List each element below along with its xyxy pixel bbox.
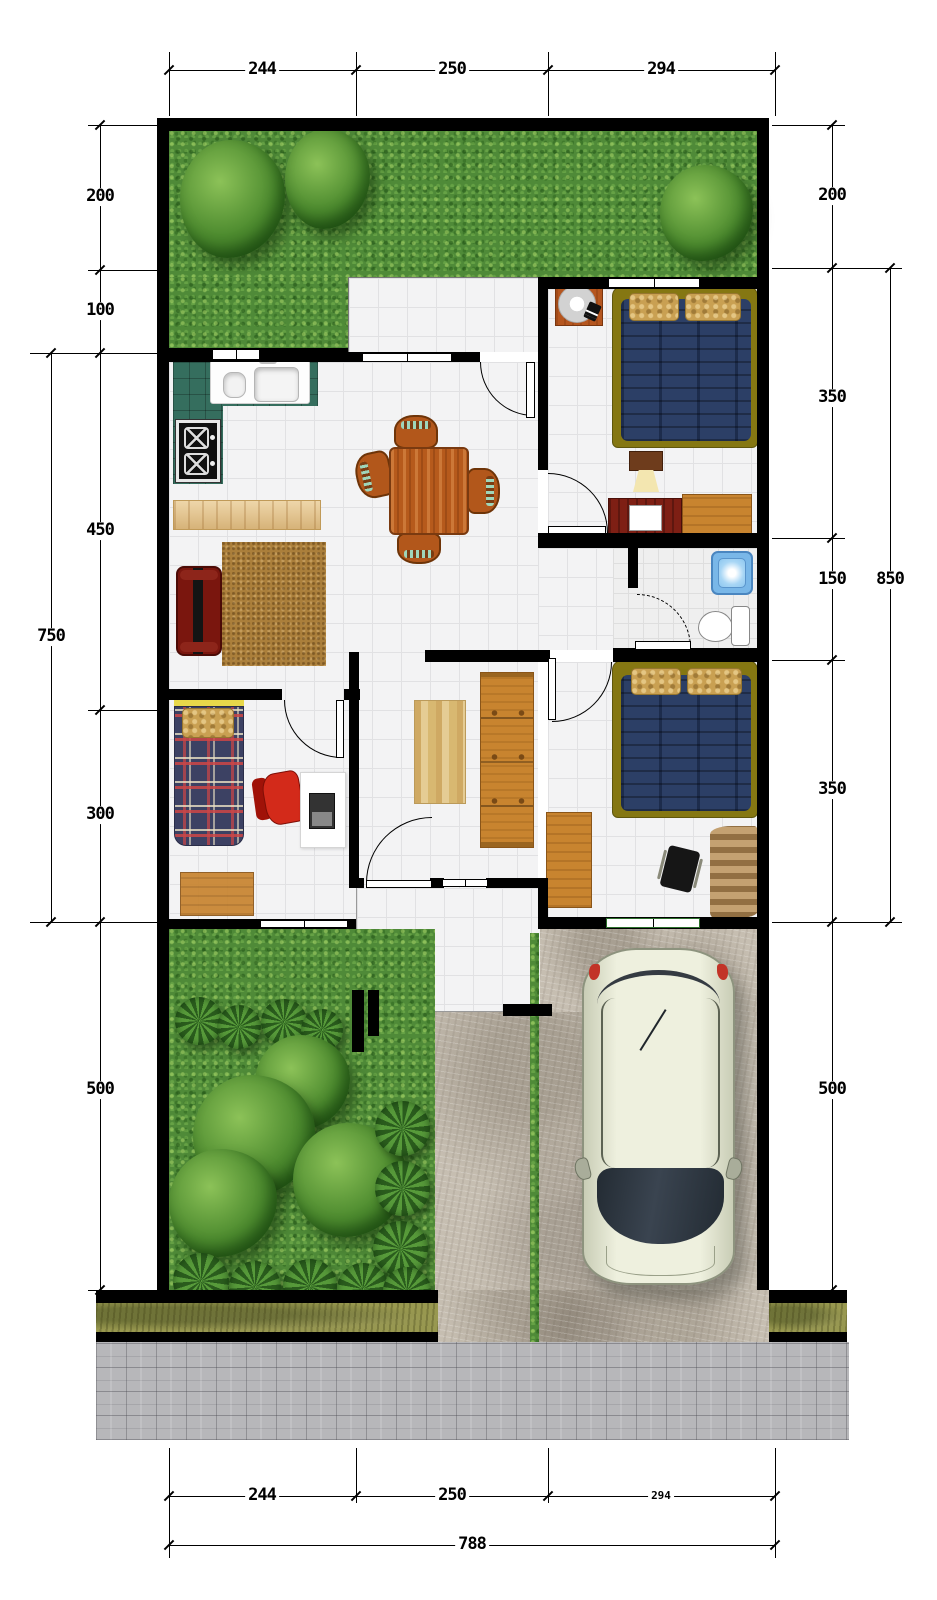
dim-label: 300 [83, 806, 117, 824]
dim-ext-line [772, 268, 902, 269]
car-hood-line [606, 1246, 715, 1276]
dining-table [389, 447, 469, 535]
dining-chair [397, 532, 441, 564]
dim-ext-line [772, 125, 845, 126]
dim-line-right [832, 125, 833, 1290]
dim-label: 500 [815, 1081, 849, 1099]
car [582, 948, 735, 1285]
dim-label: 350 [815, 389, 849, 407]
bed-pillow [629, 293, 679, 321]
dim-ext-line [772, 1290, 845, 1291]
bedroom2-door [548, 658, 556, 720]
bedroom1-left-wall [538, 277, 548, 470]
car-taillight [717, 964, 728, 980]
bed-mattress [621, 675, 751, 811]
tree [285, 129, 370, 229]
front-fence [96, 1290, 438, 1303]
dim-label: 350 [815, 781, 849, 799]
sofa [176, 566, 222, 656]
nightstand [629, 451, 663, 471]
dim-label: 244 [245, 1487, 279, 1505]
dim-ext-line [772, 538, 845, 539]
hall-window [442, 879, 488, 887]
terrace-side-wall [538, 888, 548, 929]
dining-chair [394, 415, 438, 449]
tree [660, 165, 753, 261]
hall-vertical-wall [349, 652, 359, 888]
boundary-wall-top [157, 118, 769, 131]
kitchen-window [212, 349, 260, 360]
car-body [582, 948, 735, 1285]
sideboard [173, 500, 321, 530]
front-fence [769, 1290, 847, 1303]
chair-cushion [404, 550, 434, 558]
car-taillight [589, 964, 600, 980]
dim-ext-line [772, 660, 845, 661]
toilet [698, 606, 750, 646]
living-window [362, 353, 452, 362]
burner [184, 453, 209, 475]
porch [348, 277, 538, 352]
stove-knob [210, 461, 215, 466]
dim-label: 294 [648, 1490, 674, 1502]
bedroom3-top-wall [344, 689, 360, 700]
shower-drain-area [718, 558, 746, 588]
tree [180, 140, 285, 258]
living-rug [222, 542, 326, 666]
rug [710, 826, 758, 918]
bedroom1-door [548, 526, 606, 534]
shrub [375, 1101, 430, 1156]
dim-label: 788 [455, 1536, 489, 1554]
back-garden [169, 929, 435, 1290]
wardrobe-cap [481, 842, 533, 847]
kitchen-sink [210, 360, 310, 404]
hall-bottom-wall [356, 878, 364, 888]
double-bed [612, 286, 758, 448]
driveway-crossing [438, 1290, 769, 1342]
dim-ext-line [169, 52, 170, 116]
burner [184, 427, 209, 449]
bathroom-left-wall [628, 548, 638, 588]
desk-chair-red [254, 770, 302, 828]
bedroom1-bottom-wall [538, 533, 769, 548]
driveway-grass-strip [530, 933, 539, 1342]
grass-verge [769, 1303, 847, 1332]
dim-label: 500 [83, 1081, 117, 1099]
dim-ext-line [356, 52, 357, 116]
sofa-arm [180, 642, 218, 652]
floor-plan: 244 250 294 200 100 450 300 750 500 200 … [0, 0, 937, 1600]
stove [176, 420, 220, 482]
tree [169, 1149, 277, 1257]
paver-sidewalk [96, 1342, 849, 1440]
car-roof [601, 998, 720, 1168]
entry-door [526, 362, 535, 418]
terrace-step-wall [503, 1004, 552, 1016]
bedroom1-window [608, 278, 700, 288]
dim-label: 450 [83, 522, 117, 540]
dim-label: 200 [83, 188, 117, 206]
dim-line-right-outer [890, 268, 891, 922]
bedroom3-window [260, 920, 348, 928]
bedroom2-window [606, 918, 700, 928]
bedroom3-door [336, 700, 344, 758]
dim-label: 750 [34, 628, 68, 646]
dining-chair [466, 468, 500, 514]
double-bed [612, 660, 758, 818]
toilet-tank [731, 606, 750, 646]
runner-rug [414, 700, 466, 804]
dim-ext-line [548, 52, 549, 116]
dresser [682, 494, 752, 536]
dim-label: 244 [245, 61, 279, 79]
tv-cabinet [608, 498, 682, 538]
dim-label: 250 [435, 61, 469, 79]
dim-label: 100 [83, 302, 117, 320]
toilet-bowl [698, 611, 733, 642]
bed-pillow [687, 668, 742, 695]
hallway [538, 548, 613, 650]
stove-knob [210, 435, 215, 440]
sofa-arm [180, 570, 218, 580]
shrub [175, 997, 223, 1045]
bathroom-door [635, 641, 691, 650]
front-garden [169, 131, 757, 277]
bed-pillow [685, 293, 741, 321]
desk [546, 812, 592, 908]
terrace-pillar [368, 990, 379, 1036]
floor-mat [180, 872, 254, 916]
shower-tray [711, 551, 753, 595]
dim-label: 200 [815, 187, 849, 205]
dim-label: 250 [435, 1487, 469, 1505]
shrub [217, 1005, 261, 1049]
dim-ext-line [772, 922, 902, 923]
wardrobe-cap [481, 673, 533, 677]
tv [629, 505, 662, 531]
boundary-wall-right [757, 131, 769, 1290]
chair-cushion [486, 476, 494, 506]
chair-cushion [359, 461, 373, 492]
front-garden-left [169, 277, 348, 353]
laptop [309, 793, 335, 829]
sink-basin [223, 372, 246, 398]
dim-label: 150 [815, 571, 849, 589]
dim-ext-line [775, 52, 776, 116]
desk [300, 772, 346, 848]
bedroom3-top-wall [169, 689, 282, 700]
hall-wall [425, 650, 550, 662]
shrub [375, 1161, 430, 1216]
terrace-wall-stub [352, 990, 364, 1052]
chair-cushion [401, 421, 431, 429]
hall-bottom-wall [486, 878, 548, 888]
wardrobe [480, 672, 534, 848]
sink-basin [254, 367, 299, 402]
back-door [366, 880, 432, 888]
dim-label: 850 [873, 571, 907, 589]
kerb-line [769, 1332, 847, 1342]
single-bed [174, 700, 244, 846]
bed-pillow [631, 668, 681, 695]
kerb-line [96, 1332, 438, 1342]
bed-pillow [182, 708, 234, 738]
car-windshield [597, 1168, 724, 1244]
bathroom-bottom-wall [613, 648, 769, 662]
dim-label: 294 [644, 61, 678, 79]
grass-verge [96, 1303, 438, 1332]
